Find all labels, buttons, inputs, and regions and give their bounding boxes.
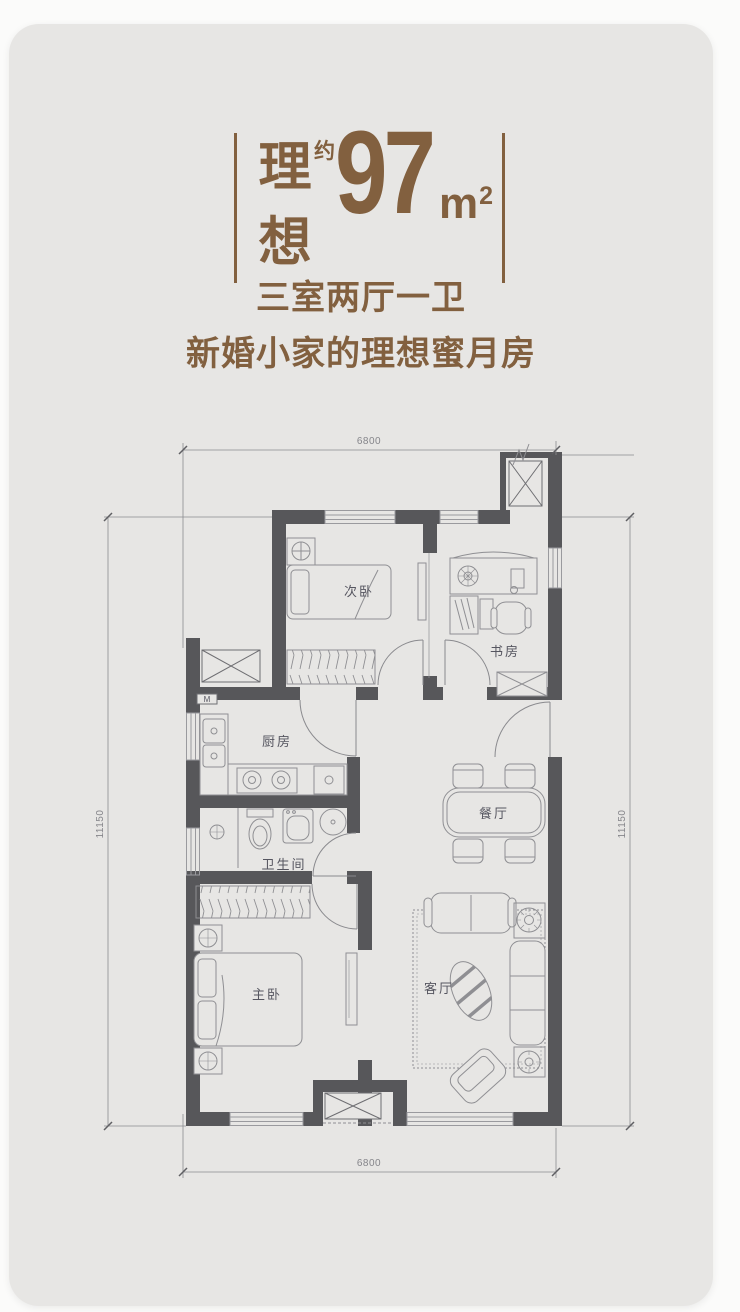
dim-right xyxy=(562,455,634,1130)
pillow-1 xyxy=(198,959,216,997)
window-kitchen-left xyxy=(187,713,200,760)
toilet-tank xyxy=(247,809,273,817)
window-master-bottom xyxy=(230,1113,303,1126)
wardrobe xyxy=(287,650,375,684)
bathroom-sink xyxy=(320,809,346,835)
stove xyxy=(237,768,297,793)
window-study-right xyxy=(549,548,562,588)
living-furniture xyxy=(413,893,545,1107)
kitchen-sink xyxy=(203,719,225,743)
kitchen-counter-bottom xyxy=(228,764,347,795)
dim-top-value: 6800 xyxy=(357,436,381,447)
floorplan-drawing: 次卧 书房 厨房 餐厅 卫生间 主卧 客厅 M xyxy=(0,0,740,1312)
ac-platform-left xyxy=(202,650,260,682)
bedroom2-furniture xyxy=(287,538,429,684)
door-study xyxy=(445,640,490,685)
window-bathroom-left xyxy=(187,828,200,875)
window-bedroom2-top xyxy=(325,511,395,524)
desk-phone xyxy=(511,569,524,588)
tv-bench xyxy=(346,953,357,1025)
bookshelf xyxy=(450,596,478,634)
label-living: 客厅 xyxy=(424,981,454,996)
master-wardrobe xyxy=(196,886,310,918)
ac-platform-bottom xyxy=(323,1093,393,1123)
door-entry xyxy=(495,702,550,757)
door-bathroom xyxy=(313,833,356,876)
dining-chair xyxy=(505,764,535,788)
pillow xyxy=(291,570,309,614)
label-dining: 餐厅 xyxy=(479,806,509,821)
label-bathroom: 卫生间 xyxy=(261,857,306,872)
toilet xyxy=(249,819,271,849)
label-study: 书房 xyxy=(490,644,520,659)
desk-chair xyxy=(495,602,527,634)
label-master-bedroom: 主卧 xyxy=(252,987,282,1002)
door-kitchen xyxy=(300,700,356,756)
long-sofa xyxy=(510,941,545,1045)
dining-chair xyxy=(453,764,483,788)
dim-right-value: 11150 xyxy=(617,810,628,839)
door-master xyxy=(312,884,357,929)
dim-left-value: 11150 xyxy=(95,810,106,839)
furniture xyxy=(194,538,547,1107)
fridge xyxy=(314,766,344,794)
pillow-2 xyxy=(198,1001,216,1039)
dining-chair xyxy=(505,839,535,863)
door-bedroom2 xyxy=(378,640,423,685)
kitchen-counter-left xyxy=(200,714,228,795)
label-kitchen: 厨房 xyxy=(262,734,292,749)
accent-chair xyxy=(447,1045,510,1107)
window-living-bottom xyxy=(407,1113,513,1126)
study-furniture xyxy=(450,552,547,696)
dim-bottom-value: 6800 xyxy=(357,1158,381,1169)
dining-chair xyxy=(453,839,483,863)
sliding-panel xyxy=(418,563,426,620)
window-study-top xyxy=(440,511,478,524)
label-secondary-bedroom: 次卧 xyxy=(344,584,374,599)
label-gas-meter: M xyxy=(204,695,211,704)
master-furniture xyxy=(194,886,357,1074)
